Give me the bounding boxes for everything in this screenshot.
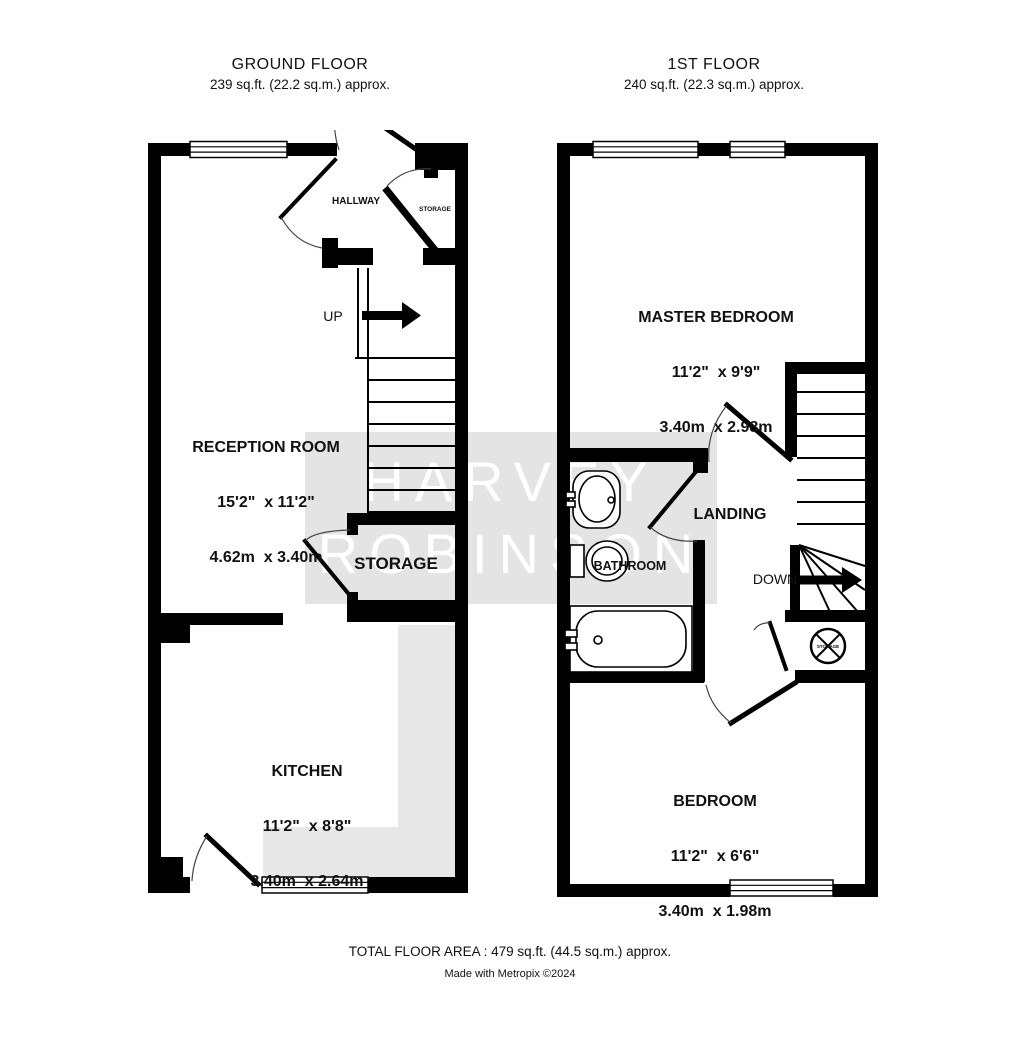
ground-floor-title: GROUND FLOOR 239 sq.ft. (22.2 sq.m.) app… [210,56,390,92]
front-door [335,130,417,150]
reception-room-dims-metric: 4.62m x 3.40m [192,548,340,567]
master-window-left [593,142,698,158]
kitchen-name: KITCHEN [251,762,364,781]
reception-door [281,160,335,248]
master-window-right [730,142,785,158]
master-bedroom-name: MASTER BEDROOM [638,308,794,327]
bathroom-label: BATHROOM [594,559,667,573]
up-label: UP [323,308,342,324]
kitchen-door [192,836,258,884]
hall-storage-label: STORAGE [419,206,451,213]
bedroom-door [706,683,795,723]
reception-room-label: RECEPTION ROOM 15'2" x 11'2" 4.62m x 3.4… [192,402,340,603]
master-bedroom-dims-imperial: 11'2" x 9'9" [638,363,794,382]
master-bedroom-label: MASTER BEDROOM 11'2" x 9'9" 3.40m x 2.98… [638,272,794,473]
reception-room-name: RECEPTION ROOM [192,438,340,457]
bathtub-icon [565,606,692,672]
ground-top-window [190,142,287,158]
ground-floor-title-text: GROUND FLOOR [210,56,390,74]
kitchen-dims-metric: 3.40m x 2.64m [251,872,364,891]
bedroom-dims-metric: 3.40m x 1.98m [659,902,772,921]
first-floor-area-text: 240 sq.ft. (22.3 sq.m.) approx. [624,77,804,92]
bedroom-dims-imperial: 11'2" x 6'6" [659,847,772,866]
sink-icon [566,471,620,528]
down-label: DOWN [753,571,797,587]
storage-label: STORAGE [354,554,438,574]
landing-label: LANDING [694,506,767,524]
first-floor-title-text: 1ST FLOOR [624,56,804,74]
master-bedroom-dims-metric: 3.40m x 2.98m [638,418,794,437]
metropix-credit: Made with Metropix ©2024 [444,968,575,980]
first-floor-title: 1ST FLOOR 240 sq.ft. (22.3 sq.m.) approx… [624,56,804,92]
bedroom-label: BEDROOM 11'2" x 6'6" 3.40m x 1.98m [659,756,772,957]
bedroom-name: BEDROOM [659,792,772,811]
cylinder-icon: STORAGE [811,629,845,663]
kitchen-dims-imperial: 11'2" x 8'8" [251,817,364,836]
cylinder-label: STORAGE [817,644,839,649]
reception-room-dims-imperial: 15'2" x 11'2" [192,493,340,512]
floorplan-image: GROUND FLOOR 239 sq.ft. (22.2 sq.m.) app… [0,0,1024,1039]
cupboard-door [754,623,786,669]
hall-storage-partition [385,188,435,250]
down-arrow-icon [800,567,862,593]
total-floor-area: TOTAL FLOOR AREA : 479 sq.ft. (44.5 sq.m… [349,944,671,959]
bathroom-door [650,468,699,541]
hallway-label: HALLWAY [332,196,380,207]
up-arrow-icon [362,302,421,329]
ground-floor-area-text: 239 sq.ft. (22.2 sq.m.) approx. [210,77,390,92]
kitchen-label: KITCHEN 11'2" x 8'8" 3.40m x 2.64m [251,726,364,927]
